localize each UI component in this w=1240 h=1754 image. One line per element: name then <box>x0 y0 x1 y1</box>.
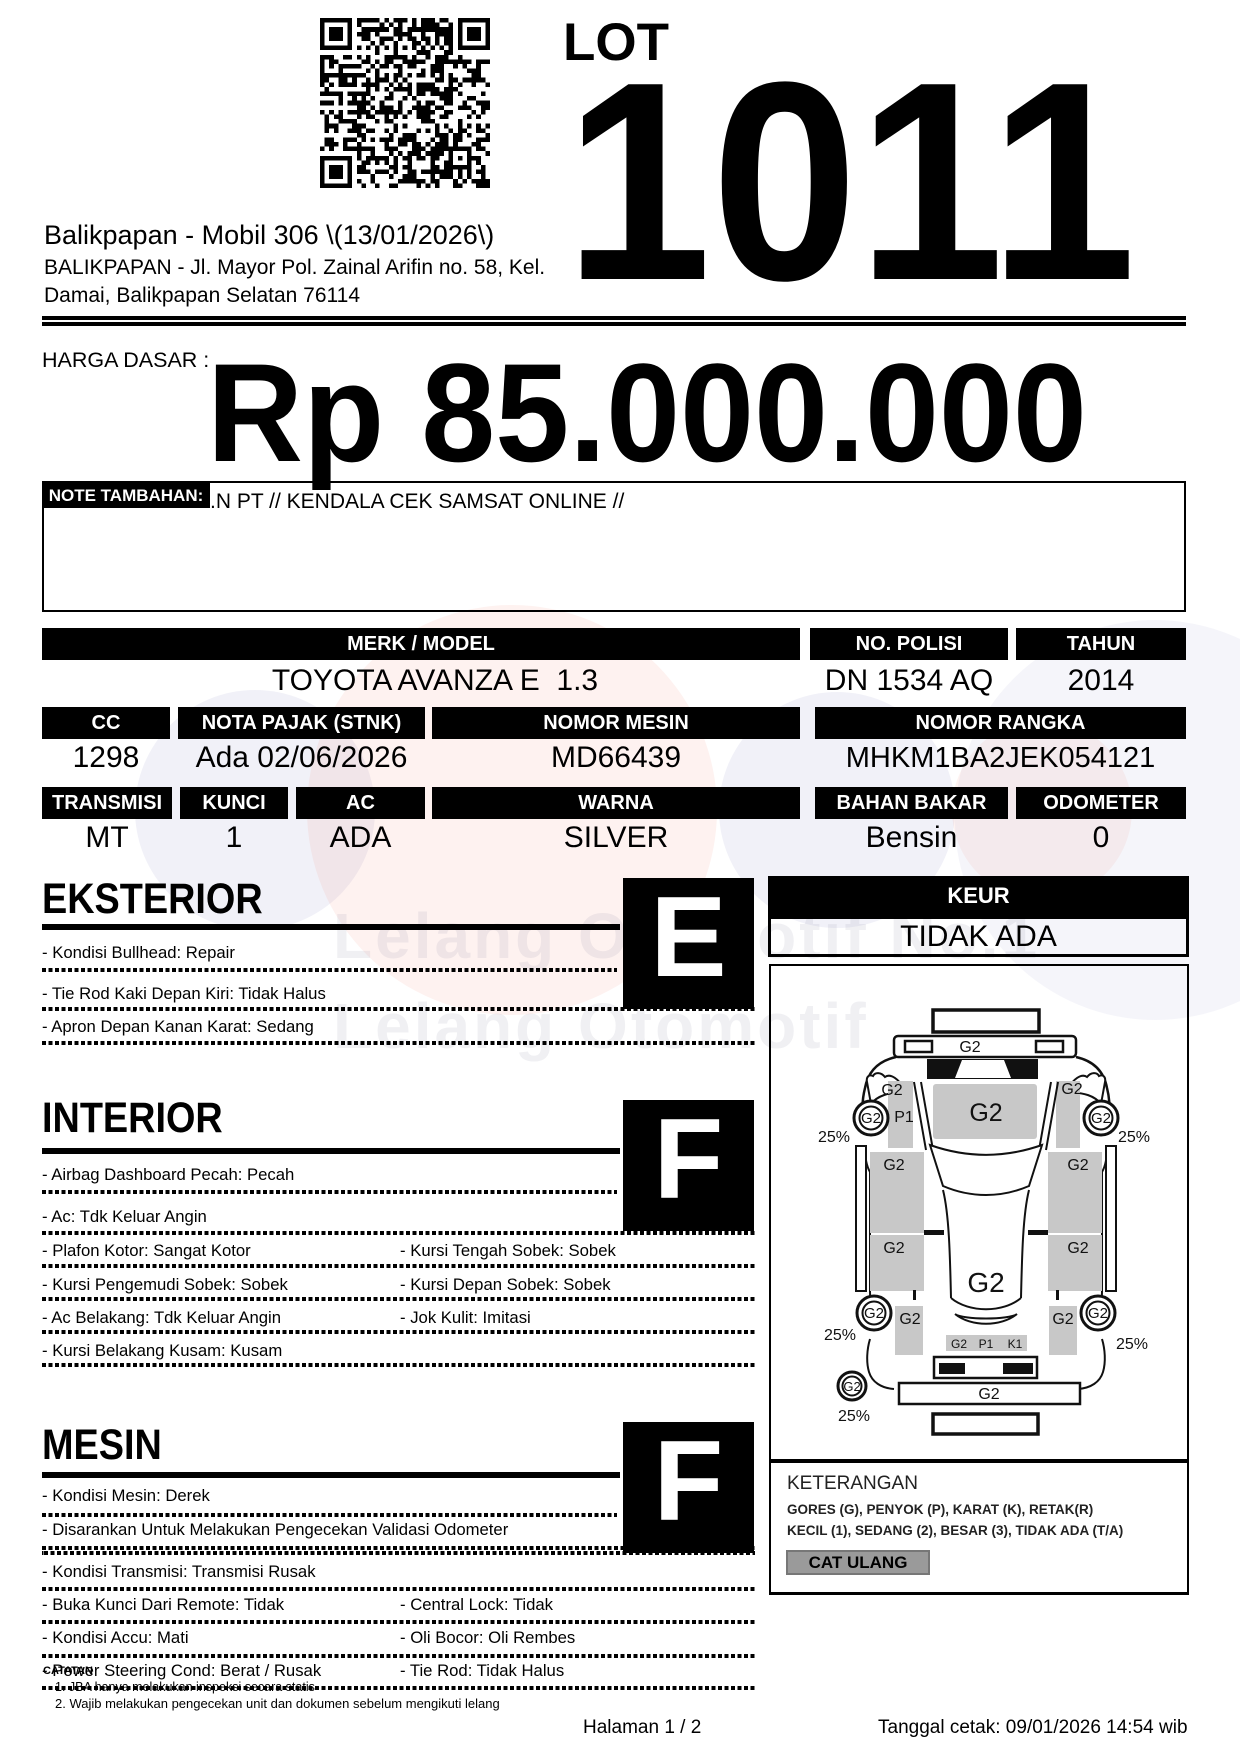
svg-text:G2: G2 <box>899 1311 920 1328</box>
svg-text:G2: G2 <box>861 1110 881 1127</box>
svg-text:25%: 25% <box>824 1327 856 1344</box>
svg-text:G2: G2 <box>978 1386 999 1403</box>
svg-text:G2: G2 <box>843 1379 860 1394</box>
svg-text:25%: 25% <box>818 1129 850 1146</box>
svg-text:P1: P1 <box>979 1337 994 1351</box>
svg-text:25%: 25% <box>838 1408 870 1425</box>
svg-text:G2: G2 <box>1067 1157 1088 1174</box>
svg-text:G2: G2 <box>959 1039 980 1056</box>
svg-text:K1: K1 <box>1008 1337 1023 1351</box>
svg-text:G2: G2 <box>883 1157 904 1174</box>
svg-text:P1: P1 <box>894 1109 914 1126</box>
svg-text:G2: G2 <box>969 1099 1002 1127</box>
svg-text:G2: G2 <box>1052 1311 1073 1328</box>
svg-text:25%: 25% <box>1118 1129 1150 1146</box>
svg-text:G2: G2 <box>881 1082 902 1099</box>
svg-text:G2: G2 <box>1088 1305 1108 1322</box>
svg-text:G2: G2 <box>1091 1110 1111 1127</box>
svg-text:G2: G2 <box>967 1267 1004 1298</box>
svg-text:25%: 25% <box>1116 1336 1148 1353</box>
svg-text:G2: G2 <box>1061 1081 1082 1098</box>
svg-text:G2: G2 <box>951 1337 967 1351</box>
svg-text:G2: G2 <box>1067 1240 1088 1257</box>
svg-text:G2: G2 <box>864 1305 884 1322</box>
svg-text:G2: G2 <box>883 1240 904 1257</box>
